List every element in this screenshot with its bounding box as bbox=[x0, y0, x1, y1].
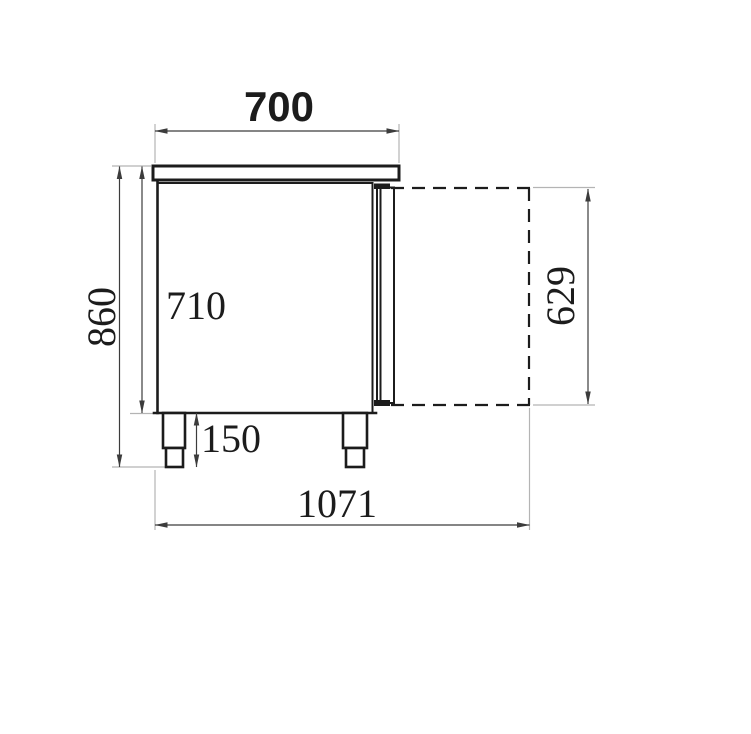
technical-drawing-svg: 700 860 710 150 1071 629 bbox=[0, 0, 751, 734]
left-leg-foot bbox=[166, 448, 183, 467]
right-leg bbox=[343, 413, 367, 448]
dim-label-height-door: 629 bbox=[538, 266, 583, 326]
left-leg bbox=[163, 413, 185, 448]
dim-label-depth-total: 1071 bbox=[297, 481, 377, 526]
door-hinge-bottom bbox=[374, 400, 390, 406]
drawing-canvas: 700 860 710 150 1071 629 bbox=[0, 0, 751, 734]
dim-label-width-top: 700 bbox=[244, 83, 314, 130]
door-hinge-top bbox=[374, 184, 390, 190]
dim-label-height-overall: 860 bbox=[79, 287, 124, 347]
dim-label-height-legs: 150 bbox=[201, 416, 261, 461]
countertop bbox=[153, 166, 399, 180]
right-leg-foot bbox=[346, 448, 364, 467]
dim-label-height-body: 710 bbox=[166, 283, 226, 328]
